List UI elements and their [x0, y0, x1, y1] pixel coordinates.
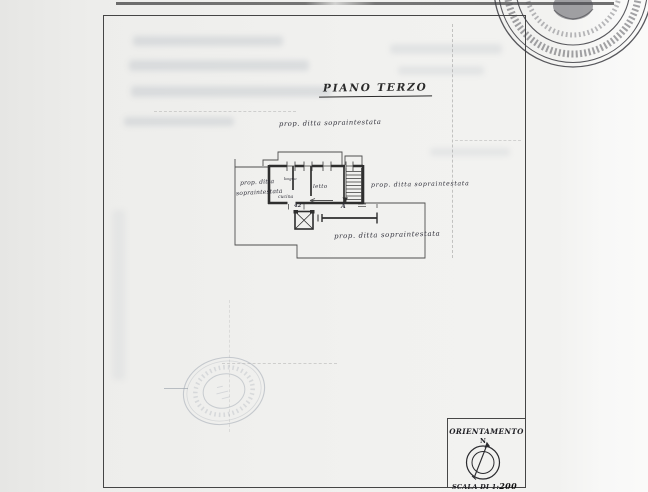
- fold-line: [455, 140, 521, 141]
- scale-prefix: SCALA DI 1:: [452, 483, 499, 491]
- page-title: PIANO TERZO: [319, 81, 432, 97]
- scale-label: SCALA DI 1:200: [452, 474, 517, 492]
- ghost-text-smudge: [133, 36, 283, 46]
- room-label-bathroom: bagno: [284, 176, 297, 181]
- north-label: N: [480, 437, 486, 445]
- ghost-text-smudge: [398, 66, 484, 75]
- section-mark-label: A: [341, 203, 346, 210]
- ghost-text-smudge: [112, 210, 125, 380]
- ghost-text-smudge: [129, 60, 309, 71]
- scale-value: 200: [499, 481, 517, 491]
- ghost-text-smudge: [131, 86, 331, 97]
- ghost-text-smudge: [390, 44, 502, 54]
- round-stamp-icon: [178, 352, 274, 432]
- fold-line: [452, 24, 453, 258]
- room-label-kitchen: cucina: [278, 195, 293, 200]
- ghost-text-smudge: [430, 148, 510, 156]
- room-label-bedroom: letto: [313, 184, 328, 190]
- official-seal-icon: [488, 0, 648, 70]
- annotation-right: prop. ditta sopraintestata: [371, 180, 470, 189]
- fold-line: [154, 111, 296, 112]
- dimension-label: 42: [294, 203, 301, 209]
- scanned-page: PIANO TERZO: [0, 0, 648, 492]
- ghost-text-smudge: [124, 117, 234, 126]
- orientation-box: ORIENTAMENTO N SCALA DI 1:200: [447, 418, 525, 487]
